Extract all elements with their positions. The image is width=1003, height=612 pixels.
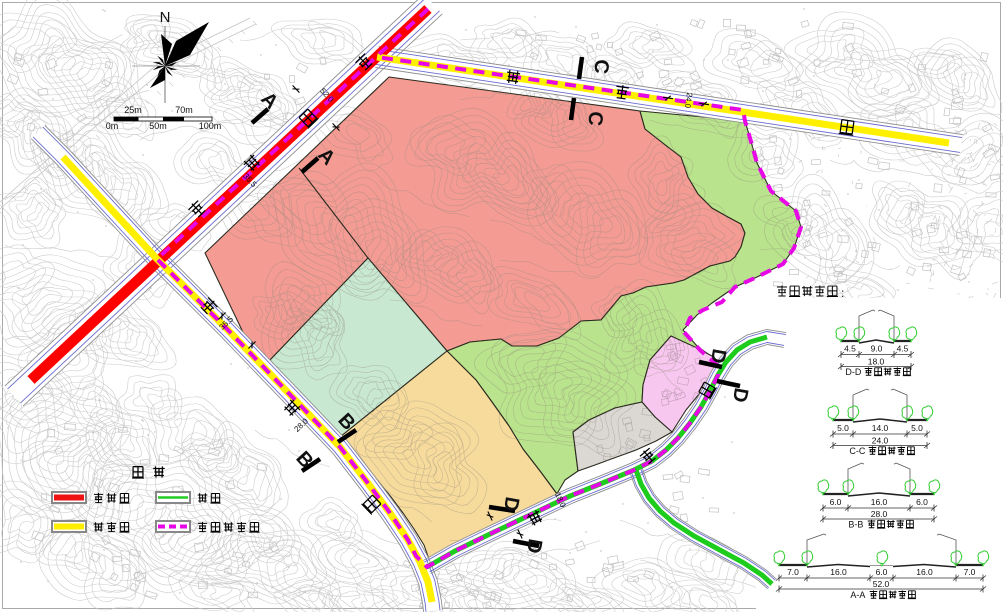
svg-text:C-C: C-C (849, 446, 865, 456)
svg-text:16.0: 16.0 (916, 567, 933, 577)
svg-text:4.5: 4.5 (897, 344, 909, 354)
svg-text:D-D: D-D (845, 367, 861, 377)
svg-text:7.0: 7.0 (964, 567, 976, 577)
svg-text:100m: 100m (199, 121, 222, 131)
svg-text:16.0: 16.0 (871, 497, 888, 507)
svg-text:25m: 25m (124, 105, 142, 115)
svg-text:6.0: 6.0 (916, 497, 928, 507)
svg-text:C: C (583, 110, 606, 127)
svg-text:16.0: 16.0 (830, 567, 847, 577)
svg-text:28.0: 28.0 (871, 509, 888, 519)
svg-text:5.0: 5.0 (911, 423, 923, 433)
svg-text:6.0: 6.0 (830, 497, 842, 507)
svg-text:18.0: 18.0 (868, 357, 885, 367)
svg-text:52.0: 52.0 (873, 579, 890, 589)
svg-text:7.0: 7.0 (787, 567, 799, 577)
svg-text:4.5: 4.5 (844, 344, 856, 354)
svg-text::: : (841, 286, 844, 300)
svg-text:70m: 70m (175, 105, 193, 115)
svg-text:B-B: B-B (848, 520, 863, 530)
svg-text:9.0: 9.0 (871, 344, 883, 354)
svg-text:A-A: A-A (850, 590, 865, 600)
svg-text:N: N (160, 9, 171, 26)
svg-text:0m: 0m (106, 121, 119, 131)
svg-text:24.0: 24.0 (872, 436, 889, 446)
svg-text:50m: 50m (149, 121, 167, 131)
svg-text:14.0: 14.0 (872, 423, 889, 433)
svg-text:5.0: 5.0 (837, 423, 849, 433)
svg-text:6.0: 6.0 (876, 567, 888, 577)
svg-text:C: C (589, 58, 612, 75)
